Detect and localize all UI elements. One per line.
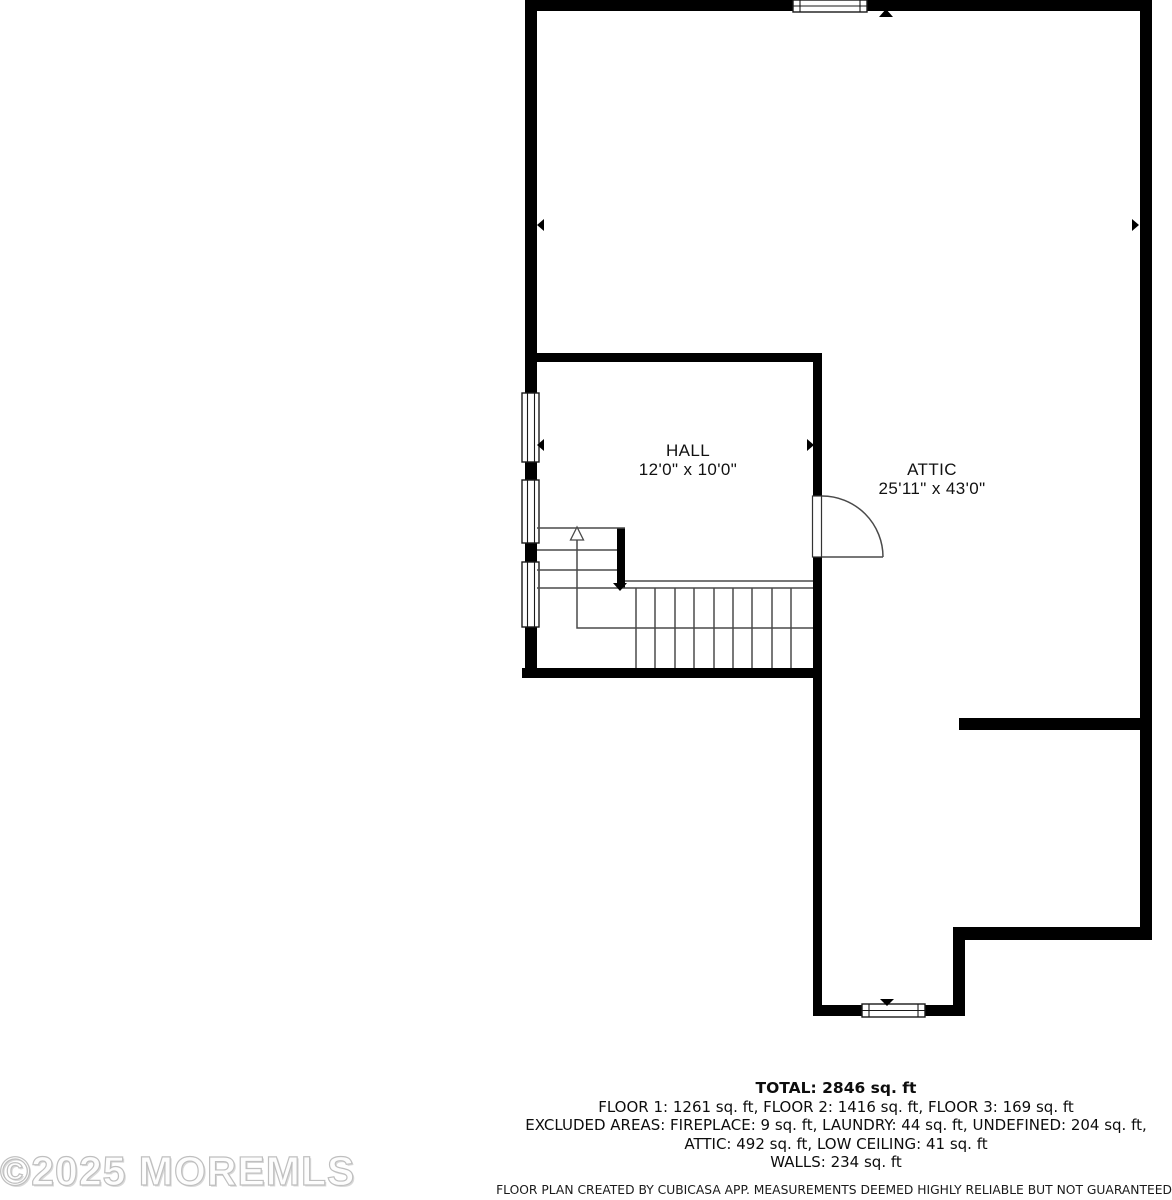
wing-right-wall — [953, 927, 965, 1016]
hall-top-wall — [525, 353, 822, 362]
watermark-text: ©2025 MOREMLS — [0, 1148, 355, 1195]
room-label-hall: HALL 12'0" x 10'0" — [588, 441, 788, 479]
total-area: TOTAL: 2846 sq. ft — [436, 1079, 1172, 1098]
floor-areas: FLOOR 1: 1261 sq. ft, FLOOR 2: 1416 sq. … — [436, 1098, 1172, 1117]
area-summary: TOTAL: 2846 sq. ft FLOOR 1: 1261 sq. ft,… — [436, 1079, 1172, 1172]
disclaimer-text: FLOOR PLAN CREATED BY CUBICASA APP. MEAS… — [436, 1183, 1172, 1197]
notch-wall — [953, 927, 1152, 940]
left-window-3 — [522, 562, 539, 627]
attic-door-frame — [813, 496, 822, 557]
stair-walk-line — [577, 540, 813, 628]
left-window-2 — [522, 480, 539, 543]
walk-direction-arrow — [571, 527, 584, 540]
marker-hall-right-wall — [807, 439, 814, 451]
marker-outer-left-wall — [537, 219, 544, 231]
left-window-1 — [522, 393, 539, 462]
low-ceiling-divider-wall — [959, 718, 1152, 730]
floor-plan-canvas: HALL 12'0" x 10'0" ATTIC 25'11" x 43'0" … — [0, 0, 1172, 1200]
floor-plan-drawing — [0, 0, 1172, 1200]
room-dimensions-hall: 12'0" x 10'0" — [588, 460, 788, 479]
top-window — [793, 0, 867, 12]
room-name-attic: ATTIC — [832, 460, 1032, 479]
hall-right-wall-upper — [813, 353, 822, 496]
hall-bottom-wall — [522, 668, 822, 678]
bottom-window — [862, 1004, 925, 1017]
door-swing-arc — [822, 496, 883, 557]
excluded-areas-line1: EXCLUDED AREAS: FIREPLACE: 9 sq. ft, LAU… — [436, 1116, 1172, 1135]
staircase — [537, 527, 813, 668]
wing-left-wall — [813, 557, 822, 1016]
marker-outer-right-wall — [1132, 219, 1139, 231]
outer-right-wall — [1140, 0, 1152, 940]
room-name-hall: HALL — [588, 441, 788, 460]
stair-stub-wall — [617, 528, 625, 588]
room-dimensions-attic: 25'11" x 43'0" — [832, 479, 1032, 498]
room-label-attic: ATTIC 25'11" x 43'0" — [832, 460, 1032, 498]
walls-area: WALLS: 234 sq. ft — [436, 1153, 1172, 1172]
excluded-areas-line2: ATTIC: 492 sq. ft, LOW CEILING: 41 sq. f… — [436, 1135, 1172, 1154]
